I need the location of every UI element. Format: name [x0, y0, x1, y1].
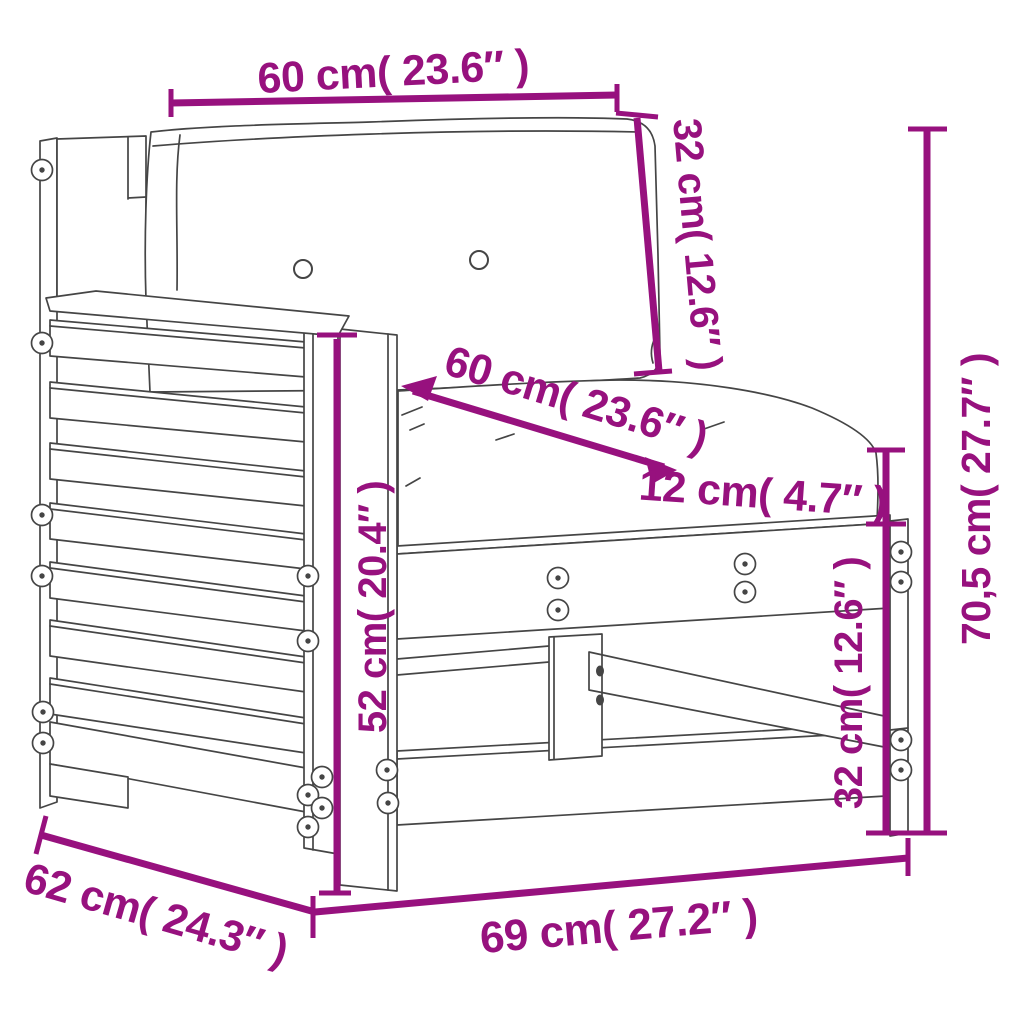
label-seat-frame-height: 32 cm( 12.6″ ): [827, 557, 871, 809]
dim-overall-height: [908, 129, 947, 833]
label-overall-width: 69 cm( 27.2″ ): [478, 890, 759, 963]
right-back-post: [890, 519, 908, 836]
label-back-cushion-height: 32 cm( 12.6″ ): [664, 117, 730, 372]
dimension-diagram-page: 60 cm( 23.6″ ) 32 cm( 12.6″ ) 60 cm( 23.…: [0, 0, 1024, 1024]
label-overall-depth: 62 cm( 24.3″ ): [19, 854, 293, 975]
cushion-button: [470, 251, 488, 269]
chair-dimension-diagram: 60 cm( 23.6″ ) 32 cm( 12.6″ ) 60 cm( 23.…: [0, 0, 1024, 1024]
base-side-rail: [397, 646, 549, 675]
back-panel: [57, 136, 146, 307]
label-overall-height: 70,5 cm( 27.7″ ): [953, 353, 999, 645]
cushion-button: [294, 260, 312, 278]
label-armrest-height: 52 cm( 20.4″ ): [351, 481, 395, 733]
label-back-cushion-width: 60 cm( 23.6″ ): [256, 41, 530, 103]
base-bottom-stretcher: [397, 724, 886, 825]
